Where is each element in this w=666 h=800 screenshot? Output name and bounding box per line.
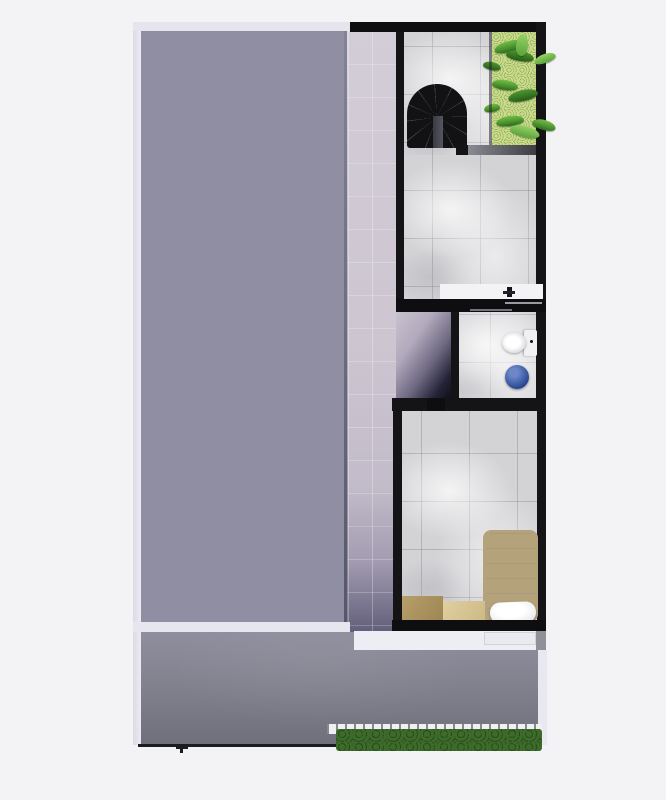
bucket — [505, 365, 529, 389]
wall-edge-highlight — [505, 302, 542, 304]
corridor — [348, 31, 396, 632]
fence-line — [138, 744, 336, 747]
top-wall — [133, 22, 352, 31]
corridor-wall-lower — [393, 411, 402, 620]
fence-latch-stem — [180, 747, 183, 753]
balcony-strip-left — [133, 622, 350, 632]
toilet-tank-button — [530, 340, 533, 343]
plant-leaf — [491, 78, 518, 92]
top-black-wall — [350, 22, 546, 32]
right-black-wall — [536, 22, 546, 622]
toilet-bedroom-wall — [392, 398, 546, 411]
balcony-step-outline — [484, 632, 536, 645]
toilet-room-left-wall — [451, 312, 459, 398]
storage-box-dark — [402, 596, 443, 622]
bedroom-bottom-wall — [392, 620, 546, 631]
bathroom-floor — [404, 155, 536, 299]
floorplan-render — [0, 0, 666, 800]
balcony-corner-gray — [536, 631, 546, 650]
faucet-handle — [503, 291, 515, 294]
storage-box-light — [443, 601, 485, 622]
roof-terrace — [141, 31, 347, 622]
planter-bed — [492, 32, 536, 145]
toilet-bowl — [502, 332, 526, 353]
hedge-row — [336, 729, 542, 751]
wall-edge-highlight — [470, 309, 512, 311]
corridor-wall-upper — [396, 32, 404, 311]
left-wall — [133, 22, 141, 745]
staircase-entry-slot — [433, 116, 443, 148]
passage-floor — [396, 312, 451, 398]
planter-left-edge — [489, 32, 492, 145]
